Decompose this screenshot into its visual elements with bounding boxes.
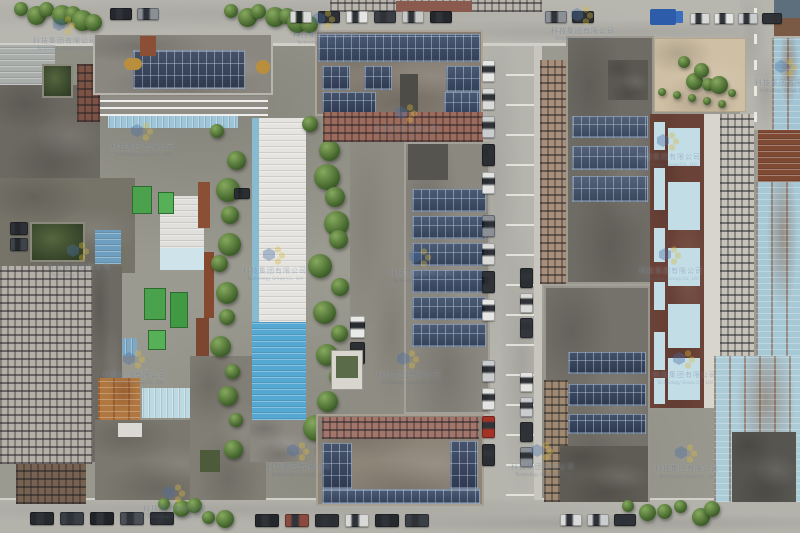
parked-car <box>520 397 533 417</box>
parked-car <box>150 512 174 525</box>
tree <box>218 233 241 256</box>
parked-car <box>520 422 533 442</box>
tree-row-east <box>302 116 350 461</box>
skylight-a2 <box>654 168 665 210</box>
tree <box>694 63 709 78</box>
parked-car <box>315 514 339 527</box>
tree <box>225 364 240 379</box>
warehouse-roof-white <box>252 118 306 322</box>
rust-duct-3 <box>196 318 209 360</box>
tree <box>704 501 720 517</box>
solar-row-ne-3 <box>572 176 648 202</box>
solar-row-center-5 <box>412 297 486 320</box>
solar-row-center-2 <box>412 216 486 239</box>
rust-roof-east <box>758 130 800 182</box>
green-machine-4 <box>170 292 188 328</box>
skylight-a3 <box>654 228 665 262</box>
tree <box>331 325 348 342</box>
parked-car <box>482 444 495 466</box>
tree-row-west <box>210 124 248 462</box>
parked-car <box>10 238 28 251</box>
parked-car <box>255 514 279 527</box>
tree <box>210 124 224 138</box>
skylight-b5 <box>668 358 700 400</box>
roof-shaft-nc <box>400 74 418 112</box>
parked-car <box>110 8 132 20</box>
tree <box>319 140 340 161</box>
parked-car <box>290 11 312 23</box>
skylight-b2 <box>668 182 700 230</box>
white-hut <box>118 423 142 437</box>
solar-block-nc-4 <box>322 92 376 114</box>
tree <box>329 230 348 249</box>
parked-car <box>482 172 495 194</box>
parked-car <box>482 60 495 82</box>
roof-shaft-center <box>408 144 448 180</box>
tree <box>308 254 332 278</box>
facade-strip-center <box>323 112 483 142</box>
skylight-a6 <box>654 378 665 404</box>
parked-car <box>572 11 594 23</box>
parked-car <box>690 13 710 24</box>
truck-trailer-blue <box>650 9 676 25</box>
gray-roof-below-warehouse <box>250 420 306 462</box>
parked-car <box>430 11 452 23</box>
solar-block-nc-2 <box>364 66 392 90</box>
roof-dark-east-south <box>560 446 648 502</box>
parked-car <box>587 514 609 526</box>
green-machine-1 <box>132 186 152 214</box>
solar-block-nc-1 <box>322 66 350 90</box>
skylight-b1 <box>668 128 700 166</box>
tree <box>639 504 656 521</box>
truck-cab-blue <box>676 11 683 23</box>
parked-car <box>482 271 495 293</box>
solar-row-es-3 <box>568 414 646 434</box>
white-beam-strip <box>100 96 268 116</box>
tree <box>216 510 234 528</box>
tree <box>224 440 243 459</box>
tree <box>229 413 243 427</box>
solar-row-es-2 <box>568 384 646 406</box>
green-machine-3 <box>144 288 166 320</box>
solar-row-center-3 <box>412 243 486 266</box>
tree <box>313 301 336 324</box>
solar-array-nc-main <box>318 34 480 62</box>
parked-car <box>614 514 636 526</box>
solar-block-sc-east <box>450 441 478 489</box>
tree <box>678 56 690 68</box>
tree <box>187 498 202 513</box>
parked-car <box>405 514 429 527</box>
brown-wall-west <box>16 464 86 504</box>
solar-row-sc-south <box>322 489 480 504</box>
parked-car <box>60 512 84 525</box>
roof-dark-southeast <box>732 432 796 502</box>
rooftop-pond-south <box>30 222 85 262</box>
parked-car <box>375 514 399 527</box>
rust-metal-roof <box>98 378 140 424</box>
parked-car <box>482 416 495 438</box>
parked-car <box>120 512 144 525</box>
blue-roof-east <box>756 182 800 356</box>
skylight-b3 <box>668 248 700 286</box>
skylight-b4 <box>668 304 700 348</box>
parked-car <box>482 360 495 382</box>
tree <box>703 97 711 105</box>
blue-roof-small-left <box>95 230 121 264</box>
tree <box>216 282 238 304</box>
parked-car <box>318 11 340 23</box>
parked-car <box>714 13 734 24</box>
green-machine-5 <box>148 330 166 350</box>
parked-car <box>482 144 495 166</box>
parked-car <box>482 388 495 410</box>
parked-car <box>482 116 495 138</box>
solar-block-nc-3 <box>446 66 480 92</box>
parked-car <box>30 512 54 525</box>
parked-car <box>374 11 396 23</box>
parked-car <box>762 13 782 24</box>
solar-row-center-1 <box>412 189 486 212</box>
parked-car <box>560 514 582 526</box>
parked-car <box>482 243 495 265</box>
tree <box>622 500 634 512</box>
tree <box>219 309 235 325</box>
solar-block-sc-west <box>322 443 352 489</box>
skylight-a4 <box>654 282 665 310</box>
parked-car <box>482 88 495 110</box>
tree <box>302 116 318 132</box>
parked-car <box>482 215 495 237</box>
tree <box>218 386 238 406</box>
tree <box>221 206 239 224</box>
courtyard-plants <box>658 88 740 110</box>
rust-equipment-nw <box>140 36 156 56</box>
parked-car <box>545 11 567 23</box>
tree <box>251 4 266 19</box>
tree <box>325 187 345 207</box>
tree <box>657 504 672 519</box>
parked-car <box>738 13 758 24</box>
parked-car <box>345 514 369 527</box>
tree <box>688 94 696 102</box>
solar-row-es-1 <box>568 352 646 374</box>
parked-car <box>90 512 114 525</box>
tree <box>85 14 102 31</box>
tree <box>673 91 681 99</box>
parked-car <box>234 188 250 199</box>
parked-car <box>482 299 495 321</box>
parked-car <box>520 268 533 288</box>
parked-car <box>520 293 533 313</box>
tree <box>317 391 338 412</box>
rooftop-pond-north <box>42 64 73 98</box>
trees-top-left <box>14 2 106 34</box>
rust-duct-1 <box>198 182 210 228</box>
solar-row-ne-1 <box>572 116 648 138</box>
tree <box>227 151 246 170</box>
solar-row-ne-2 <box>572 146 648 170</box>
solar-row-center-4 <box>412 270 486 293</box>
white-canopy-blue-end <box>160 248 204 270</box>
warehouse-roof-blue-edge <box>252 118 259 322</box>
parked-car <box>285 514 309 527</box>
tree <box>331 278 349 296</box>
aerial-photo-stage: 科技集团有限公司Technology Group Co., Ltd科技集团有限公… <box>0 0 800 533</box>
tree <box>14 2 28 16</box>
green-roof-hut-top <box>336 356 358 378</box>
parked-car <box>520 318 533 338</box>
tree <box>728 89 736 97</box>
trees-bottom-right <box>622 500 722 530</box>
roof-inner-northeast <box>608 60 648 100</box>
facade-west-building <box>0 266 92 464</box>
green-machine-2 <box>158 192 174 214</box>
yellow-patch-nw-2 <box>256 60 270 74</box>
skylight-grid-strip <box>322 417 479 439</box>
parked-car <box>520 447 533 467</box>
skylight-a5 <box>654 332 665 370</box>
tree <box>658 88 666 96</box>
tree <box>718 100 726 108</box>
tree <box>224 4 238 18</box>
tree <box>202 511 215 524</box>
yellow-patch-nw-1 <box>124 58 142 70</box>
parked-car <box>402 11 424 23</box>
parked-car <box>350 316 365 338</box>
solar-row-center-6 <box>412 324 486 347</box>
skylight-a1 <box>654 122 665 150</box>
parked-car <box>520 372 533 392</box>
tree <box>674 500 687 513</box>
facade-pink-northeast <box>540 60 566 284</box>
parked-car <box>137 8 159 20</box>
parked-car <box>346 11 368 23</box>
tree <box>210 336 231 357</box>
warehouse-roof-blue-section <box>252 322 306 420</box>
parked-car <box>10 222 28 235</box>
tree <box>211 255 228 272</box>
tree <box>158 498 170 510</box>
blue-roof-ne-corner <box>772 38 800 130</box>
